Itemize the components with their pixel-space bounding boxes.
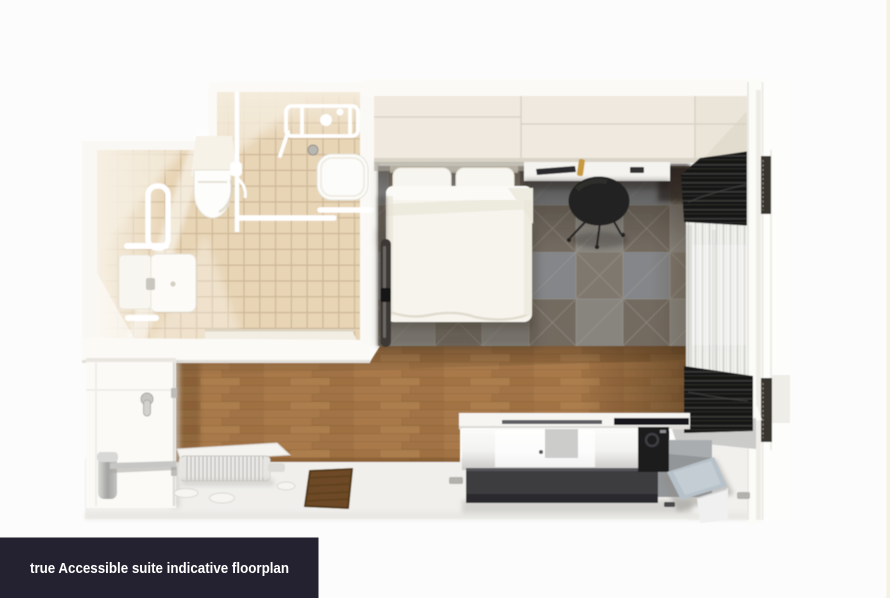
svg-text:true Accessible suite indicati: true Accessible suite indicative floorpl… <box>30 561 289 577</box>
